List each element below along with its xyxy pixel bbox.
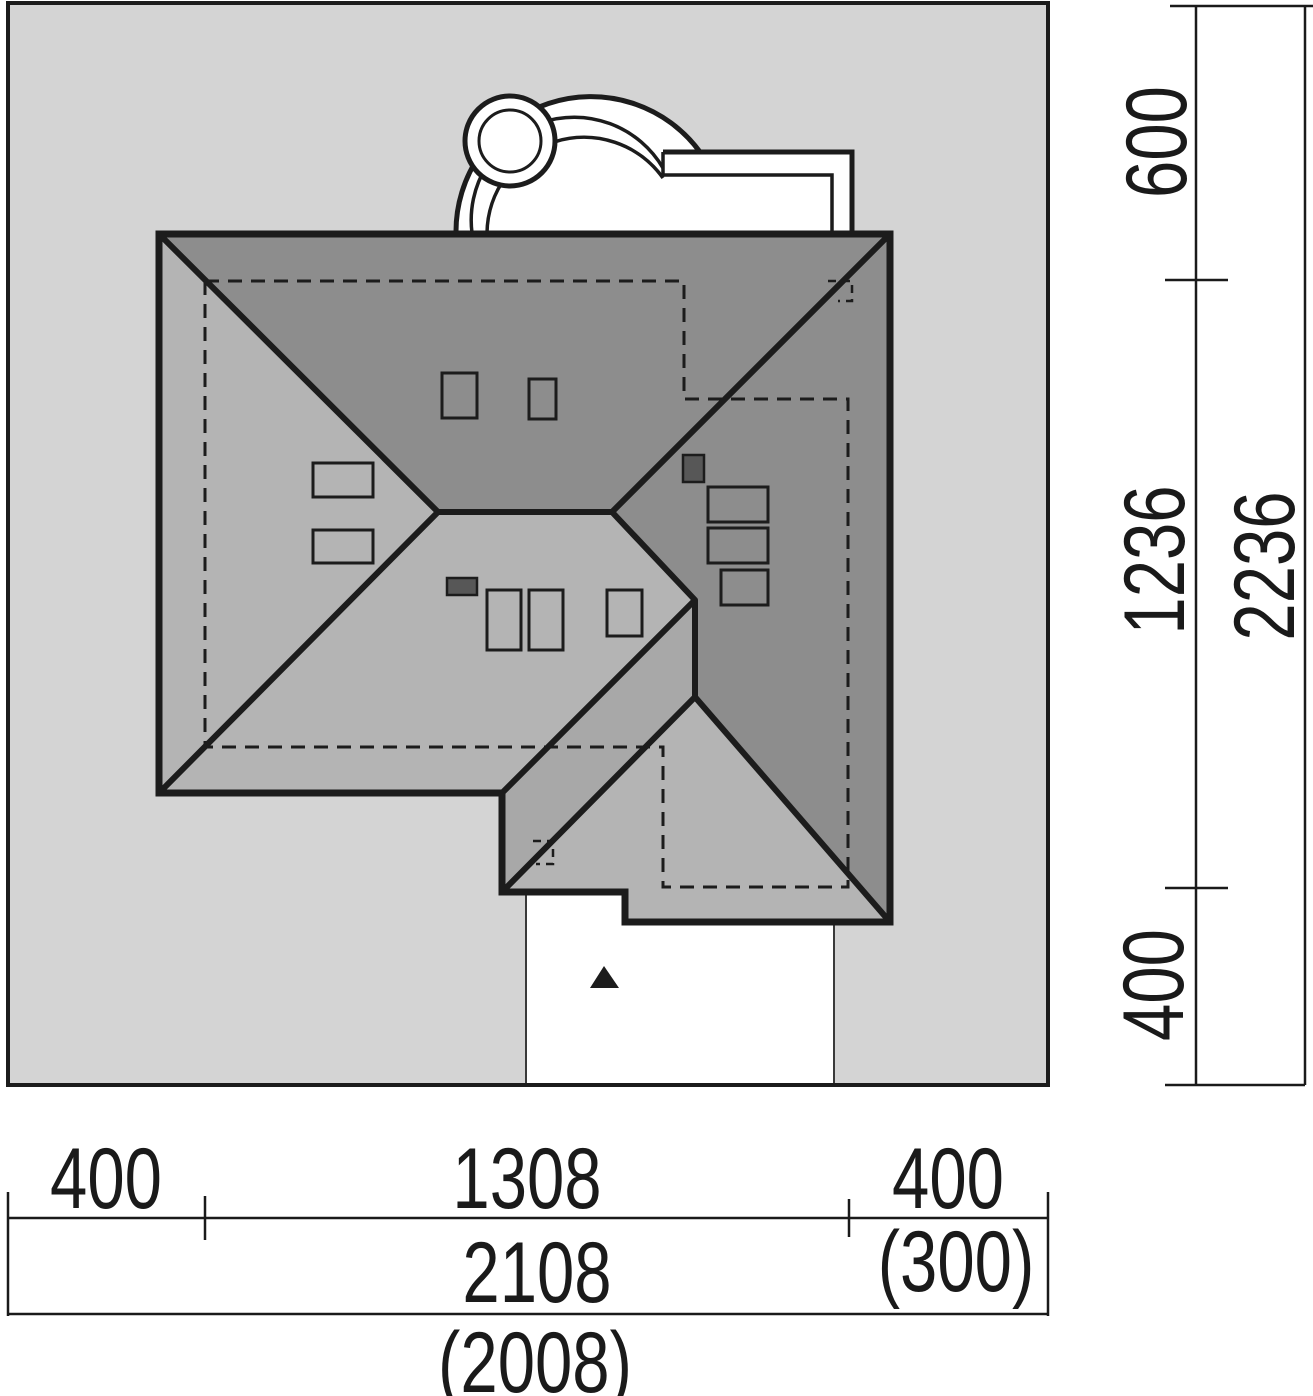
dim-label: (300) [878, 1214, 1035, 1310]
site-plan-page: 600 1236 2236 400 400 1308 400 (300) 210… [0, 0, 1313, 1396]
dimension-labels-bottom: 400 1308 400 (300) 2108 (2008) [50, 1131, 1034, 1396]
roof-window [442, 373, 477, 418]
roof-window [721, 570, 768, 605]
roof-window [529, 590, 563, 650]
dim-label: 400 [50, 1131, 162, 1227]
dim-label: 2236 [1217, 491, 1313, 640]
dim-label: 1308 [452, 1131, 601, 1227]
dim-label: 600 [1109, 86, 1205, 198]
roof-window [708, 528, 768, 563]
roof-window [708, 487, 768, 522]
chimney [683, 455, 704, 482]
roof-window [607, 590, 642, 636]
roof-window [313, 463, 373, 497]
planter-circle-inner [479, 110, 541, 172]
roof-window [313, 530, 373, 563]
dim-label: 400 [1106, 929, 1202, 1041]
dim-label: 2108 [462, 1225, 611, 1321]
chimney [447, 578, 477, 595]
dim-label: 1236 [1107, 485, 1203, 634]
site-plan-drawing: 600 1236 2236 400 400 1308 400 (300) 210… [0, 0, 1313, 1396]
dim-label: 400 [892, 1131, 1004, 1227]
dim-label: (2008) [438, 1315, 632, 1396]
roof-window [529, 379, 556, 419]
roof-window [487, 590, 521, 650]
dimension-labels-right: 600 1236 2236 400 [1106, 86, 1313, 1041]
